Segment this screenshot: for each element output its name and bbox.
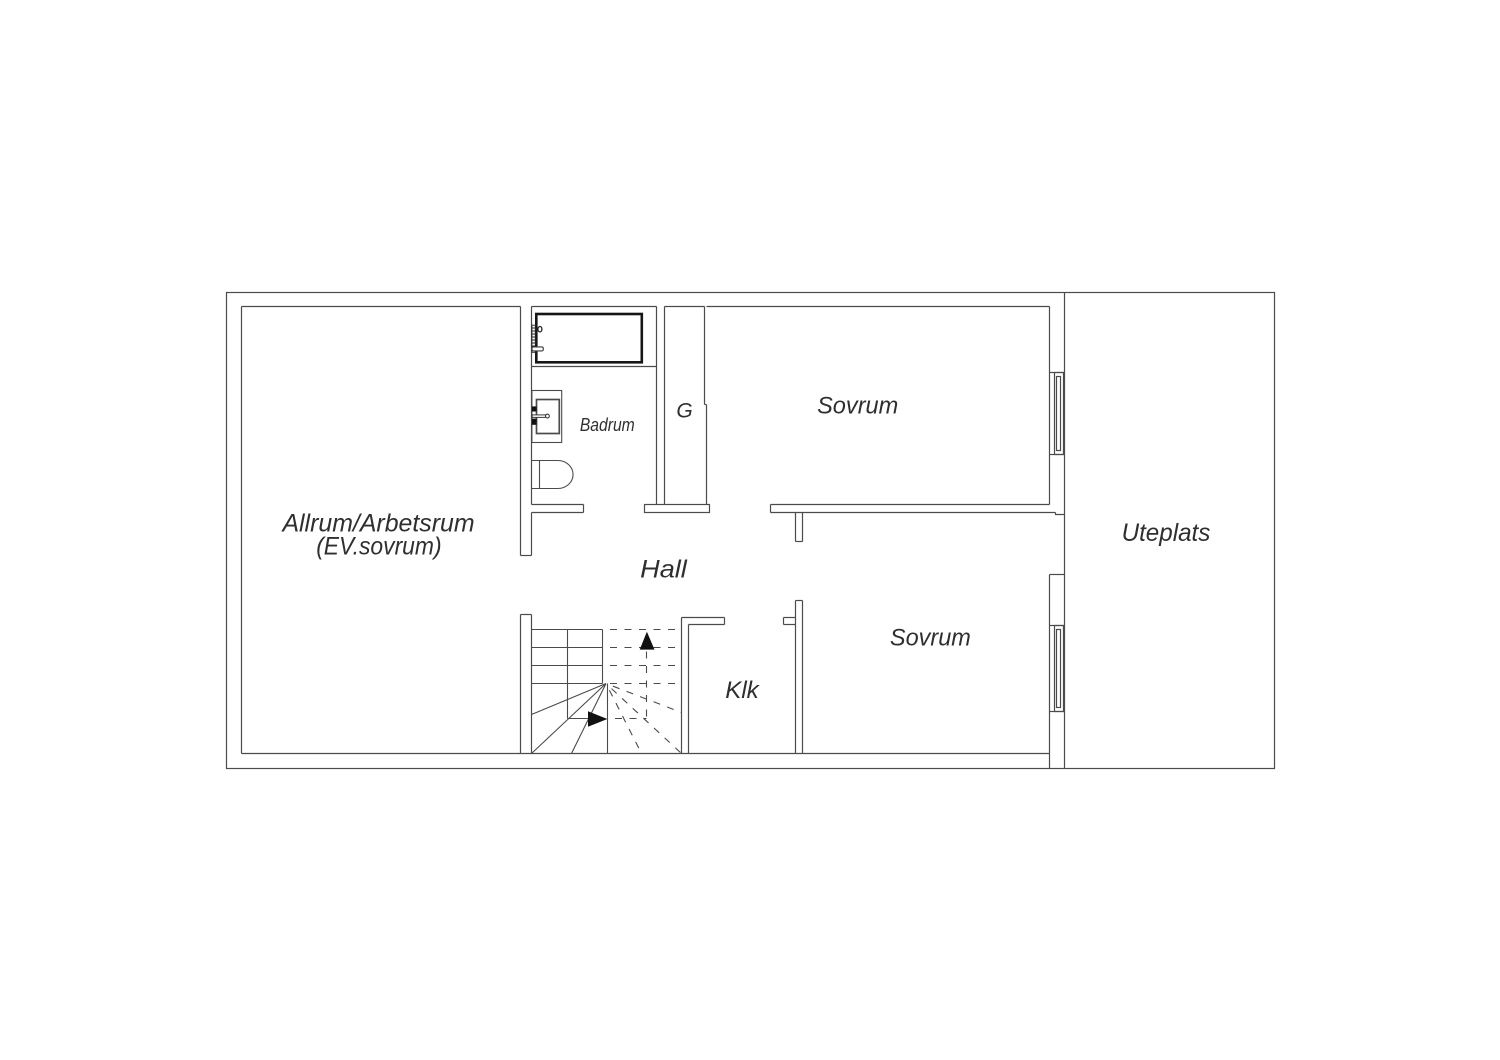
svg-text:Sovrum: Sovrum	[817, 393, 898, 420]
svg-text:Klk: Klk	[725, 677, 760, 704]
svg-text:Uteplats: Uteplats	[1122, 519, 1211, 547]
svg-text:Hall: Hall	[640, 555, 688, 583]
svg-text:Sovrum: Sovrum	[890, 625, 971, 652]
svg-text:Badrum: Badrum	[580, 414, 635, 435]
svg-text:G: G	[676, 400, 692, 423]
svg-text:(EV.sovrum): (EV.sovrum)	[316, 532, 441, 560]
